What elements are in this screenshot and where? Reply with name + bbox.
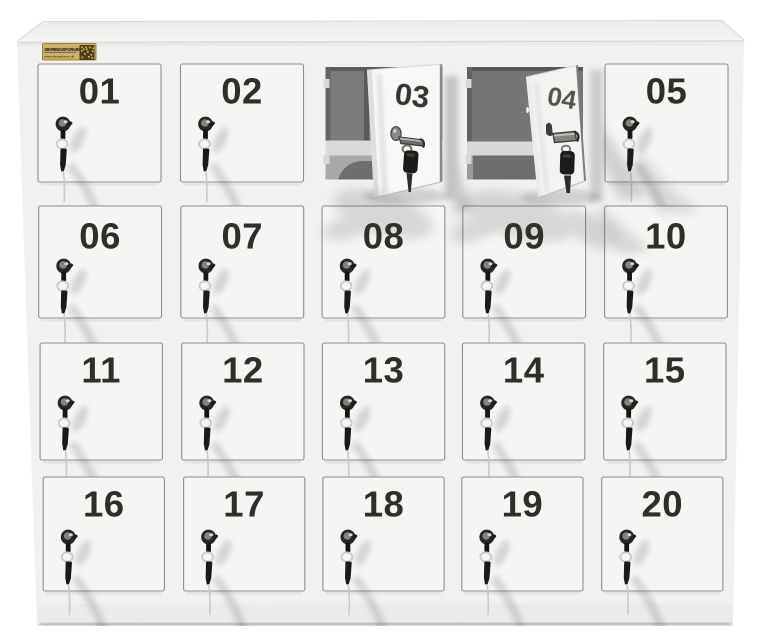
svg-text:www.sikringsforum.dk: www.sikringsforum.dk <box>44 54 74 58</box>
svg-text:15: 15 <box>644 350 686 391</box>
svg-text:07: 07 <box>221 216 263 257</box>
svg-text:SIKRINGSFORUM: SIKRINGSFORUM <box>44 47 80 52</box>
svg-text:01: 01 <box>79 71 121 112</box>
svg-text:20: 20 <box>641 484 683 525</box>
svg-text:11: 11 <box>81 350 121 391</box>
svg-text:18: 18 <box>363 484 405 525</box>
svg-text:02: 02 <box>221 71 263 112</box>
svg-text:05: 05 <box>646 71 688 112</box>
svg-text:06: 06 <box>79 216 121 257</box>
svg-text:03: 03 <box>393 76 431 115</box>
svg-text:19: 19 <box>502 484 544 525</box>
svg-text:14: 14 <box>503 350 545 391</box>
svg-text:10: 10 <box>645 216 687 257</box>
svg-text:13: 13 <box>363 350 405 391</box>
svg-text:17: 17 <box>223 484 265 525</box>
svg-text:12: 12 <box>222 350 264 391</box>
svg-text:16: 16 <box>83 484 125 525</box>
svg-text:04: 04 <box>545 81 579 116</box>
